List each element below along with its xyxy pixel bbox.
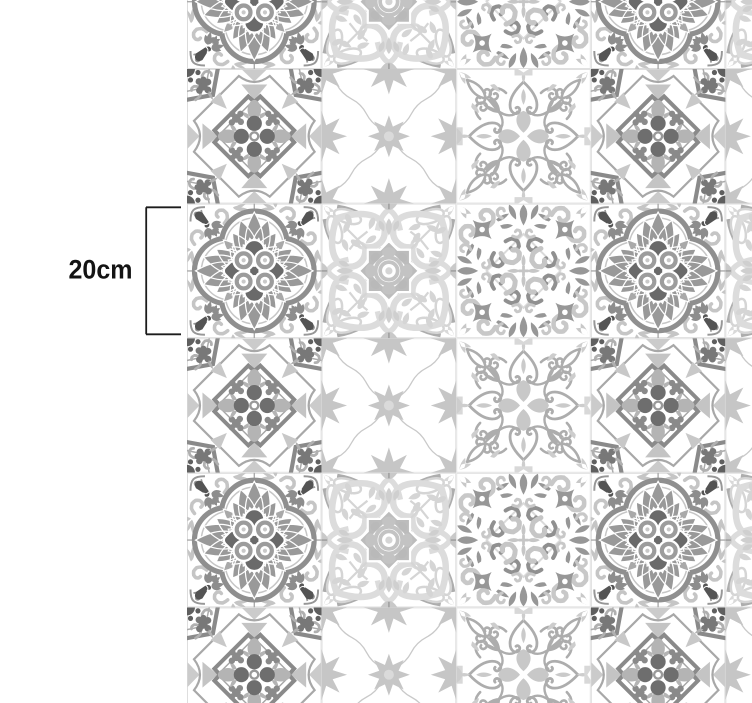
svg-text:20cm: 20cm [69,255,133,285]
